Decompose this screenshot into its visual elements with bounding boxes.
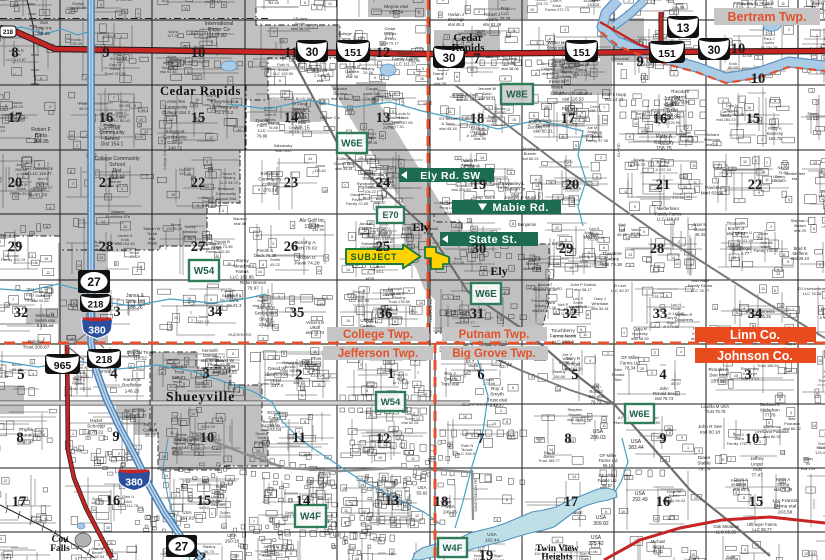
svg-text:Karen K: Karen K: [123, 377, 141, 383]
svg-text:10: 10: [139, 118, 143, 122]
svg-text:1: 1: [673, 516, 675, 520]
svg-text:LLC 76.77: LLC 76.77: [691, 288, 710, 293]
svg-text:Dolezal Trust: Dolezal Trust: [127, 350, 155, 355]
svg-text:13: 13: [77, 264, 81, 268]
svg-text:286.03: 286.03: [590, 435, 606, 441]
svg-text:20: 20: [565, 177, 580, 193]
svg-text:14: 14: [364, 449, 368, 453]
svg-text:6: 6: [304, 453, 306, 457]
svg-text:Morl 63.66: Morl 63.66: [701, 191, 724, 197]
svg-text:LLC 118.43: LLC 118.43: [657, 217, 680, 222]
svg-text:College: College: [167, 140, 183, 145]
svg-text:11: 11: [292, 430, 306, 446]
svg-text:17: 17: [12, 494, 27, 510]
svg-text:2: 2: [676, 392, 678, 396]
svg-text:6: 6: [755, 159, 757, 163]
svg-text:10: 10: [745, 431, 760, 447]
svg-text:10: 10: [569, 266, 573, 270]
svg-text:Buresh: Buresh: [536, 123, 550, 128]
svg-text:1: 1: [140, 364, 142, 368]
svg-text:14: 14: [811, 552, 815, 556]
svg-text:11: 11: [369, 157, 373, 161]
svg-text:5: 5: [629, 264, 631, 268]
svg-text:1: 1: [278, 295, 280, 299]
svg-text:75.14: 75.14: [698, 466, 710, 472]
svg-text:See etal: See etal: [709, 373, 727, 379]
svg-text:5: 5: [188, 301, 190, 305]
svg-text:3: 3: [698, 449, 700, 453]
svg-text:1: 1: [687, 446, 689, 450]
svg-text:etal 284.22: etal 284.22: [716, 117, 735, 122]
svg-text:etal 60.21: etal 60.21: [521, 156, 539, 161]
svg-text:5: 5: [757, 56, 759, 60]
svg-text:10: 10: [446, 311, 450, 315]
svg-text:5: 5: [502, 182, 504, 186]
svg-text:11: 11: [206, 382, 210, 386]
svg-text:Inc 53.59: Inc 53.59: [70, 5, 86, 10]
svg-text:238.15: 238.15: [294, 126, 310, 132]
svg-text:Ronald J: Ronald J: [709, 367, 729, 373]
svg-text:7: 7: [12, 298, 14, 302]
svg-text:Line Inc: Line Inc: [36, 26, 53, 31]
svg-text:3: 3: [651, 371, 653, 375]
svg-text:103.04: 103.04: [267, 427, 282, 433]
svg-text:Trust etal: Trust etal: [441, 382, 459, 387]
svg-text:Co 36.9: Co 36.9: [365, 96, 380, 101]
svg-text:6: 6: [413, 523, 415, 527]
svg-text:1: 1: [654, 324, 656, 328]
svg-text:27: 27: [191, 239, 206, 255]
svg-text:W4F: W4F: [442, 543, 462, 554]
svg-text:etal 78.74: etal 78.74: [306, 330, 325, 335]
svg-text:5: 5: [513, 29, 515, 33]
svg-text:9: 9: [580, 328, 582, 332]
svg-text:235.39: 235.39: [70, 41, 82, 46]
svg-text:11: 11: [344, 509, 348, 513]
svg-text:10: 10: [544, 105, 548, 109]
svg-text:11: 11: [448, 110, 452, 114]
svg-text:11: 11: [781, 2, 785, 6]
svg-text:25.36: 25.36: [363, 70, 373, 75]
svg-text:14: 14: [161, 0, 165, 3]
svg-text:151: 151: [658, 48, 676, 60]
svg-text:14: 14: [572, 475, 576, 479]
svg-text:184.10: 184.10: [91, 500, 104, 505]
svg-text:12: 12: [5, 304, 9, 308]
svg-text:6: 6: [504, 77, 506, 81]
svg-text:214.29: 214.29: [203, 424, 215, 429]
svg-text:15: 15: [746, 111, 761, 127]
svg-text:1: 1: [673, 72, 675, 76]
svg-text:9: 9: [301, 394, 303, 398]
svg-text:4: 4: [777, 268, 779, 272]
svg-text:See: See: [614, 377, 622, 382]
svg-text:16: 16: [656, 494, 671, 510]
svg-text:Wesley L: Wesley L: [505, 181, 525, 187]
svg-text:4: 4: [395, 524, 397, 528]
svg-text:Touchberry: Touchberry: [551, 328, 575, 334]
svg-text:etal 59.63: etal 59.63: [727, 231, 746, 236]
svg-text:Jr 279.68: Jr 279.68: [663, 324, 679, 329]
svg-text:LLC 76.38: LLC 76.38: [803, 291, 822, 296]
svg-text:etal 30.41: etal 30.41: [591, 306, 609, 311]
svg-text:Putnam Twp.: Putnam Twp.: [459, 329, 530, 341]
svg-text:LLC 65.35: LLC 65.35: [716, 529, 737, 534]
svg-text:2: 2: [139, 124, 141, 128]
svg-text:Roy J: Roy J: [491, 386, 504, 392]
svg-text:Exl 10 Dev: Exl 10 Dev: [124, 408, 146, 413]
svg-text:8: 8: [564, 431, 571, 447]
svg-text:13: 13: [264, 498, 268, 502]
svg-text:Paul P: Paul P: [705, 185, 719, 191]
svg-text:151: 151: [573, 47, 591, 59]
svg-text:155.95: 155.95: [33, 139, 49, 145]
svg-text:Oak Meadow: Oak Meadow: [713, 524, 740, 529]
svg-text:13: 13: [506, 108, 510, 112]
svg-text:7: 7: [815, 100, 817, 104]
svg-text:34: 34: [748, 306, 763, 322]
svg-text:12: 12: [583, 118, 587, 122]
svg-text:14: 14: [603, 118, 607, 122]
svg-text:etal 83.9: etal 83.9: [532, 308, 548, 313]
svg-text:4: 4: [351, 430, 353, 434]
svg-text:etal 34.11: etal 34.11: [478, 96, 496, 101]
svg-text:USA: USA: [417, 485, 426, 490]
svg-text:24: 24: [376, 175, 391, 191]
svg-text:Bertram Twp.: Bertram Twp.: [728, 10, 807, 24]
svg-text:3: 3: [113, 304, 120, 320]
svg-text:etal 62.46: etal 62.46: [483, 22, 502, 27]
svg-text:Ely: Ely: [490, 264, 507, 278]
svg-text:12: 12: [328, 2, 332, 6]
svg-text:School Dist: School Dist: [216, 196, 237, 201]
svg-text:etal 30: etal 30: [234, 221, 247, 226]
svg-text:7: 7: [810, 489, 812, 493]
svg-text:15: 15: [272, 356, 276, 360]
svg-text:32: 32: [14, 305, 29, 321]
svg-text:Wesley L: Wesley L: [534, 118, 553, 123]
svg-text:8: 8: [666, 294, 668, 298]
svg-text:3: 3: [447, 296, 449, 300]
svg-text:2: 2: [567, 161, 569, 165]
svg-text:Inc: Inc: [313, 367, 320, 372]
svg-text:John R See: John R See: [698, 424, 722, 429]
svg-text:9: 9: [408, 289, 410, 293]
svg-text:2: 2: [770, 225, 772, 229]
svg-text:10: 10: [751, 71, 766, 87]
svg-text:14: 14: [290, 299, 294, 303]
svg-text:383.44: 383.44: [628, 445, 644, 451]
svg-text:6: 6: [304, 1, 306, 5]
svg-text:237.4: 237.4: [271, 383, 283, 389]
svg-text:LLC 105.27: LLC 105.27: [124, 413, 147, 418]
svg-text:LLC 111.27: LLC 111.27: [394, 62, 417, 67]
svg-text:Benjamin: Benjamin: [518, 222, 537, 227]
svg-text:Shima etal: Shima etal: [774, 504, 797, 510]
svg-text:162.44: 162.44: [485, 538, 499, 543]
svg-text:12: 12: [376, 45, 391, 61]
svg-text:77.47: 77.47: [751, 473, 763, 478]
svg-text:14: 14: [174, 316, 178, 320]
svg-text:35: 35: [290, 305, 305, 321]
svg-text:12: 12: [804, 552, 808, 556]
svg-text:13: 13: [173, 415, 177, 419]
svg-text:8: 8: [506, 498, 508, 502]
svg-text:Piringer: Piringer: [565, 361, 581, 366]
svg-text:Roy J: Roy J: [444, 371, 455, 376]
svg-text:7: 7: [324, 474, 326, 478]
svg-text:Big Grove Twp.: Big Grove Twp.: [452, 348, 536, 360]
svg-text:b 134.44: b 134.44: [37, 323, 54, 328]
svg-text:9: 9: [102, 45, 109, 61]
svg-text:15: 15: [235, 554, 239, 558]
svg-text:12: 12: [602, 418, 606, 422]
svg-text:Zahradnik: Zahradnik: [460, 163, 480, 168]
svg-text:Trust 208.87: Trust 208.87: [23, 345, 50, 351]
svg-text:Farms North: Farms North: [550, 334, 577, 340]
svg-text:55.82: 55.82: [417, 490, 429, 495]
svg-text:Trust 66.27: Trust 66.27: [574, 263, 594, 268]
svg-text:etal 77.48: etal 77.48: [774, 487, 793, 492]
svg-text:9: 9: [681, 436, 683, 440]
svg-text:2: 2: [36, 437, 38, 441]
svg-text:UA 17: UA 17: [807, 116, 819, 121]
svg-text:14: 14: [191, 412, 195, 416]
svg-text:12: 12: [761, 287, 765, 291]
svg-text:30: 30: [306, 47, 319, 59]
svg-text:204.72: 204.72: [536, 1, 548, 6]
svg-text:Smyth: Smyth: [444, 376, 457, 381]
svg-text:Cedar Rapids: Cedar Rapids: [160, 84, 241, 98]
svg-text:12: 12: [465, 116, 469, 120]
svg-text:279.37: 279.37: [263, 188, 277, 193]
svg-text:27: 27: [175, 539, 189, 553]
svg-text:66.95: 66.95: [119, 103, 129, 108]
svg-text:3: 3: [175, 494, 177, 498]
svg-text:7: 7: [547, 416, 549, 420]
svg-text:21: 21: [656, 177, 671, 193]
svg-text:79.01: 79.01: [25, 298, 37, 303]
svg-text:7: 7: [312, 25, 314, 29]
svg-text:David W: David W: [268, 366, 287, 372]
svg-text:HUDSON RD: HUDSON RD: [229, 333, 252, 337]
svg-text:12: 12: [207, 236, 211, 240]
svg-text:45.45: 45.45: [617, 232, 628, 237]
svg-text:128.71: 128.71: [172, 375, 186, 380]
svg-text:205.29: 205.29: [170, 226, 182, 231]
svg-text:6: 6: [262, 263, 264, 267]
svg-text:MSP: MSP: [366, 276, 375, 281]
svg-text:etal 215.83: etal 215.83: [451, 187, 470, 192]
svg-text:3: 3: [329, 374, 331, 378]
svg-text:1: 1: [759, 440, 761, 444]
svg-text:6: 6: [629, 135, 631, 139]
svg-text:206.68: 206.68: [33, 432, 45, 437]
svg-text:10: 10: [30, 232, 34, 236]
svg-text:14: 14: [419, 301, 423, 305]
svg-text:1: 1: [811, 89, 813, 93]
svg-text:14: 14: [296, 493, 311, 509]
svg-text:Paper Co: Paper Co: [208, 27, 230, 33]
svg-text:1: 1: [363, 125, 365, 129]
svg-text:13: 13: [348, 111, 352, 115]
svg-text:12: 12: [528, 286, 532, 290]
svg-text:9: 9: [371, 451, 373, 455]
svg-text:14: 14: [0, 240, 1, 244]
svg-text:etal 45: etal 45: [542, 71, 555, 76]
svg-text:22: 22: [191, 175, 206, 191]
svg-text:9: 9: [659, 431, 666, 447]
svg-text:89.50: 89.50: [728, 65, 739, 70]
svg-text:250.19: 250.19: [225, 539, 239, 544]
svg-text:130.14: 130.14: [589, 108, 602, 113]
svg-text:10: 10: [747, 106, 751, 110]
svg-text:Life Insurance: Life Insurance: [210, 105, 239, 110]
svg-text:74.51: 74.51: [653, 549, 664, 554]
svg-text:2: 2: [102, 36, 104, 40]
svg-text:8: 8: [656, 32, 658, 36]
svg-text:Farm: Farm: [311, 362, 322, 367]
svg-text:Robin G: Robin G: [298, 255, 316, 261]
svg-text:Schropp: Schropp: [87, 424, 105, 430]
svg-text:1: 1: [593, 71, 595, 75]
svg-text:13: 13: [492, 422, 496, 426]
svg-text:12: 12: [743, 160, 747, 164]
svg-text:Sixta etal: Sixta etal: [547, 45, 565, 50]
svg-text:3: 3: [217, 419, 219, 423]
svg-text:46.31: 46.31: [695, 232, 706, 237]
svg-text:Johnson Co.: Johnson Co.: [717, 349, 793, 363]
svg-text:Jr 237.24: Jr 237.24: [655, 167, 672, 172]
svg-text:15: 15: [423, 102, 427, 106]
svg-text:11: 11: [317, 383, 321, 387]
svg-text:8: 8: [316, 6, 318, 10]
svg-text:13: 13: [324, 256, 328, 260]
svg-text:79.29: 79.29: [500, 16, 511, 21]
svg-text:13: 13: [677, 23, 690, 35]
svg-text:6: 6: [483, 267, 485, 271]
svg-text:10: 10: [499, 318, 503, 322]
svg-text:Viola R: Viola R: [463, 158, 477, 163]
svg-text:157.92: 157.92: [180, 516, 194, 521]
svg-text:12: 12: [555, 226, 559, 230]
svg-text:12: 12: [376, 431, 391, 447]
svg-text:Dist: Dist: [113, 168, 122, 174]
svg-text:1: 1: [211, 512, 213, 516]
svg-text:etal 40.56: etal 40.56: [523, 266, 541, 271]
svg-text:10: 10: [555, 539, 559, 543]
svg-text:Bodlicker: Bodlicker: [122, 383, 142, 389]
svg-text:14: 14: [308, 157, 312, 161]
svg-text:Dieck 78.35: Dieck 78.35: [254, 253, 277, 258]
svg-text:Barbara E: Barbara E: [760, 402, 780, 407]
svg-text:Trust 185.77: Trust 185.77: [538, 458, 560, 463]
svg-text:7: 7: [446, 36, 448, 40]
svg-text:13: 13: [342, 487, 346, 491]
svg-text:8: 8: [70, 170, 72, 174]
svg-text:8: 8: [290, 552, 292, 556]
svg-text:Trust 234.67: Trust 234.67: [818, 378, 825, 383]
svg-text:8: 8: [130, 365, 132, 369]
svg-text:Jr 60.84: Jr 60.84: [201, 203, 216, 208]
svg-text:29: 29: [8, 239, 23, 255]
svg-text:5: 5: [819, 263, 821, 267]
svg-text:10: 10: [255, 234, 259, 238]
svg-text:W54: W54: [194, 266, 215, 277]
svg-text:15: 15: [380, 134, 384, 138]
svg-text:Trust 78.78: Trust 78.78: [704, 409, 726, 414]
svg-text:Hazel: Hazel: [90, 418, 102, 424]
svg-text:45.22: 45.22: [270, 262, 280, 267]
svg-text:6: 6: [161, 371, 163, 375]
svg-text:LLC 192.50: LLC 192.50: [273, 71, 294, 76]
svg-text:10: 10: [323, 189, 327, 193]
svg-text:3: 3: [536, 41, 538, 45]
svg-text:117.37: 117.37: [167, 33, 179, 38]
svg-text:Grems: Grems: [673, 94, 687, 99]
svg-text:26: 26: [284, 239, 299, 255]
svg-text:13: 13: [391, 174, 395, 178]
svg-text:1: 1: [183, 486, 185, 490]
svg-text:12: 12: [535, 184, 539, 188]
svg-text:218: 218: [88, 299, 104, 310]
svg-text:Community: Community: [258, 177, 282, 182]
svg-text:2: 2: [360, 363, 362, 367]
svg-text:12: 12: [634, 122, 638, 126]
svg-text:15: 15: [734, 374, 738, 378]
svg-text:Falls: Falls: [50, 544, 70, 554]
svg-text:3: 3: [367, 270, 369, 274]
svg-text:11: 11: [109, 541, 113, 545]
svg-text:18: 18: [470, 111, 485, 127]
svg-text:11: 11: [693, 181, 697, 185]
svg-text:9: 9: [510, 171, 512, 175]
svg-text:7: 7: [761, 138, 763, 142]
svg-text:Mickelson: Mickelson: [760, 407, 780, 412]
svg-text:College: College: [262, 182, 278, 187]
svg-text:6: 6: [46, 225, 48, 229]
svg-text:Family 22.65: Family 22.65: [346, 201, 368, 206]
svg-text:SANDY BEACH RD: SANDY BEACH RD: [474, 478, 478, 512]
svg-text:Inc 71.3: Inc 71.3: [227, 303, 243, 308]
svg-text:106.22: 106.22: [364, 189, 376, 194]
svg-text:etal 149: etal 149: [801, 466, 816, 471]
svg-text:18: 18: [434, 494, 449, 510]
svg-text:ROCKFORD RD: ROCKFORD RD: [534, 287, 563, 291]
svg-text:4: 4: [222, 209, 224, 213]
svg-text:etal 21: etal 21: [706, 142, 719, 147]
svg-text:Robin Brown: Robin Brown: [240, 280, 267, 285]
svg-text:3: 3: [557, 196, 559, 200]
svg-text:149.70: 149.70: [583, 234, 596, 239]
svg-text:7: 7: [107, 196, 109, 200]
svg-text:7: 7: [382, 166, 384, 170]
svg-text:Jeffrey: Jeffrey: [750, 456, 764, 461]
svg-text:6: 6: [394, 92, 396, 96]
svg-text:Heights: Heights: [541, 553, 572, 560]
svg-text:Linn Co.: Linn Co.: [730, 328, 780, 342]
svg-text:144.24: 144.24: [635, 115, 648, 120]
svg-text:ELY RD: ELY RD: [617, 143, 621, 157]
svg-text:8: 8: [690, 263, 692, 267]
svg-text:etal: etal: [273, 377, 281, 383]
svg-text:W4F: W4F: [300, 512, 321, 523]
svg-text:11: 11: [765, 178, 769, 182]
svg-text:lec 71.78: lec 71.78: [29, 192, 47, 197]
svg-text:2: 2: [482, 272, 484, 276]
svg-text:Shueyville: Shueyville: [166, 389, 235, 404]
svg-text:6: 6: [658, 268, 660, 272]
